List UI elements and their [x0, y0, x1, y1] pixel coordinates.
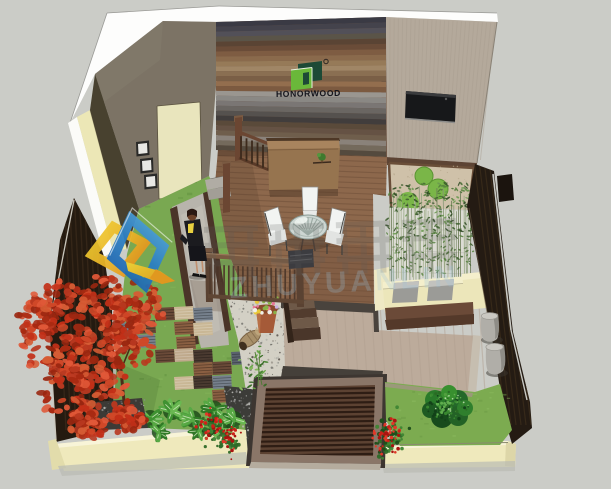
svg-text:HONORWOOD: HONORWOOD [276, 88, 341, 99]
